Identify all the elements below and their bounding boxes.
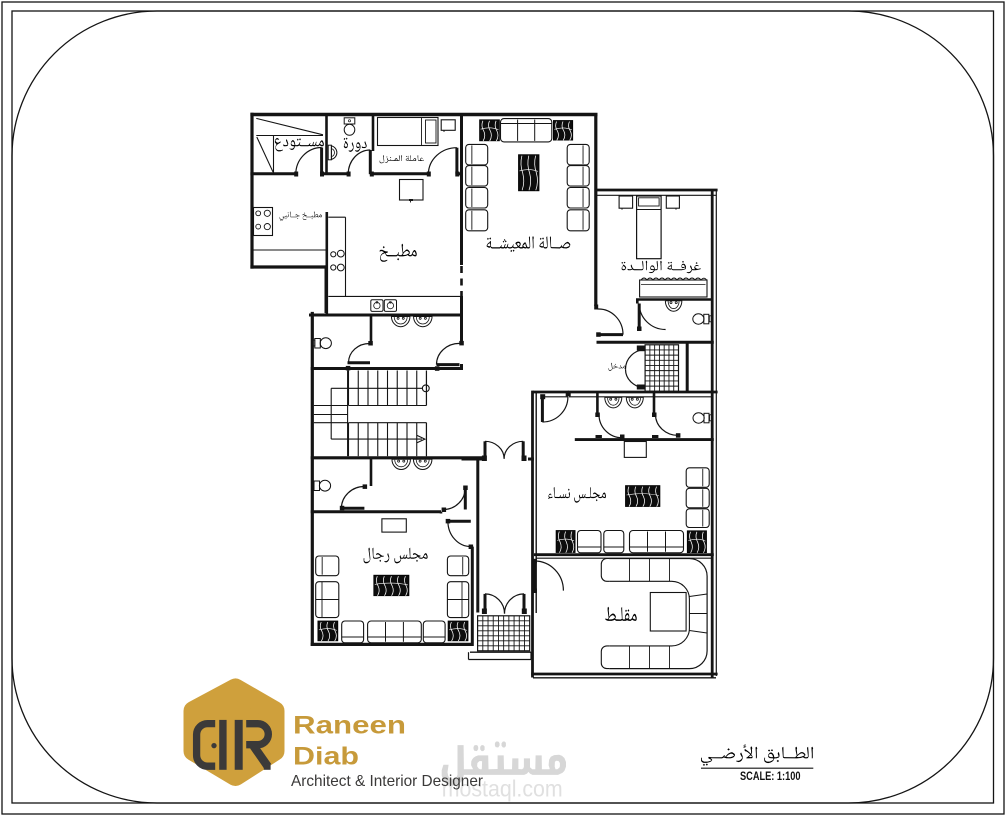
svg-text:Architect & Interior Designer: Architect & Interior Designer [291,773,484,790]
svg-text:Diab: Diab [293,743,359,771]
svg-text:Raneen: Raneen [293,712,406,740]
svg-text:SCALE: 1:100: SCALE: 1:100 [740,769,801,783]
